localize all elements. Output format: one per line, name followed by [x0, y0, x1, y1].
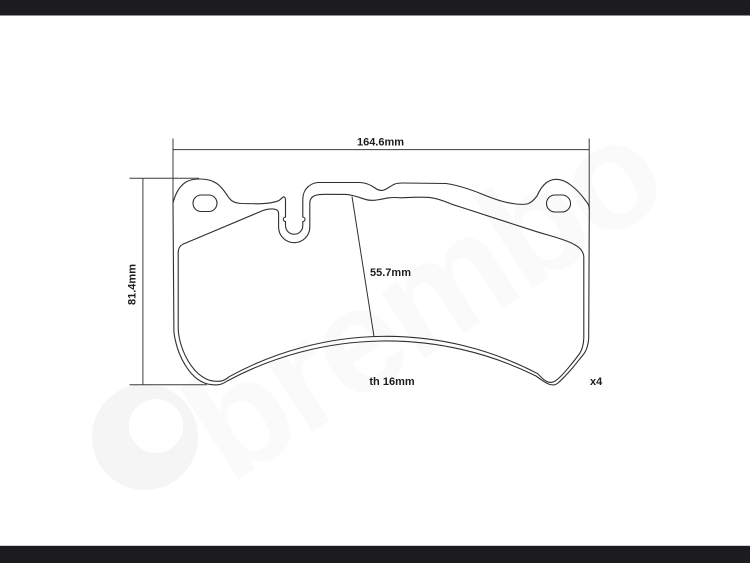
svg-text:th 16mm: th 16mm — [369, 376, 414, 388]
svg-text:164.6mm: 164.6mm — [357, 136, 404, 148]
svg-text:55.7mm: 55.7mm — [370, 267, 411, 279]
svg-text:81.4mm: 81.4mm — [127, 264, 139, 305]
svg-text:x4: x4 — [590, 376, 603, 388]
